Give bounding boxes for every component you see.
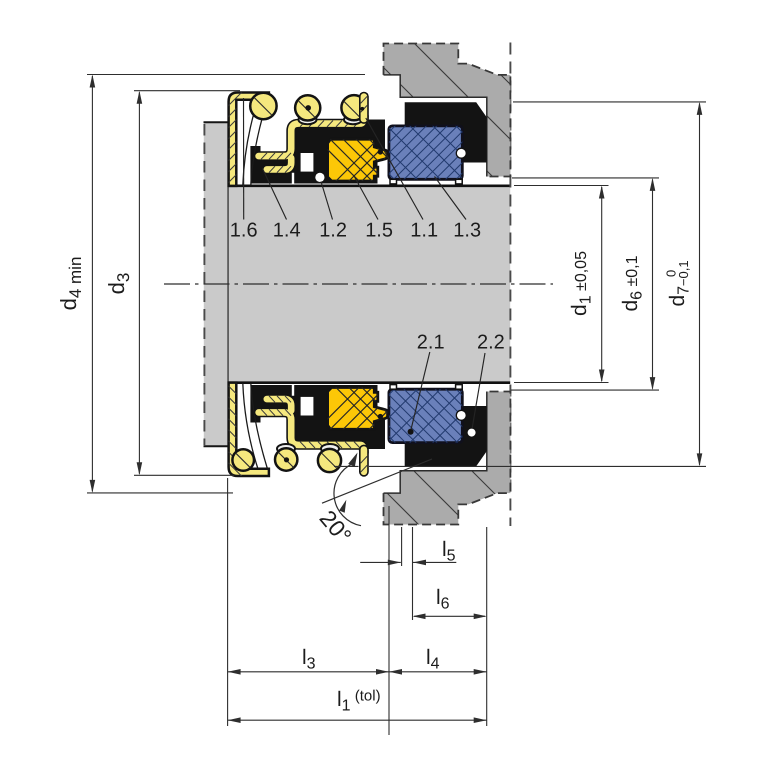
svg-text:1.6: 1.6 <box>230 220 258 242</box>
svg-text:1.2: 1.2 <box>319 220 347 242</box>
svg-text:1.3: 1.3 <box>453 220 481 242</box>
svg-text:2.2: 2.2 <box>477 332 505 354</box>
svg-text:1.4: 1.4 <box>273 220 301 242</box>
svg-text:2.1: 2.1 <box>417 332 445 354</box>
svg-text:1.5: 1.5 <box>365 220 393 242</box>
svg-text:1.1: 1.1 <box>410 220 438 242</box>
